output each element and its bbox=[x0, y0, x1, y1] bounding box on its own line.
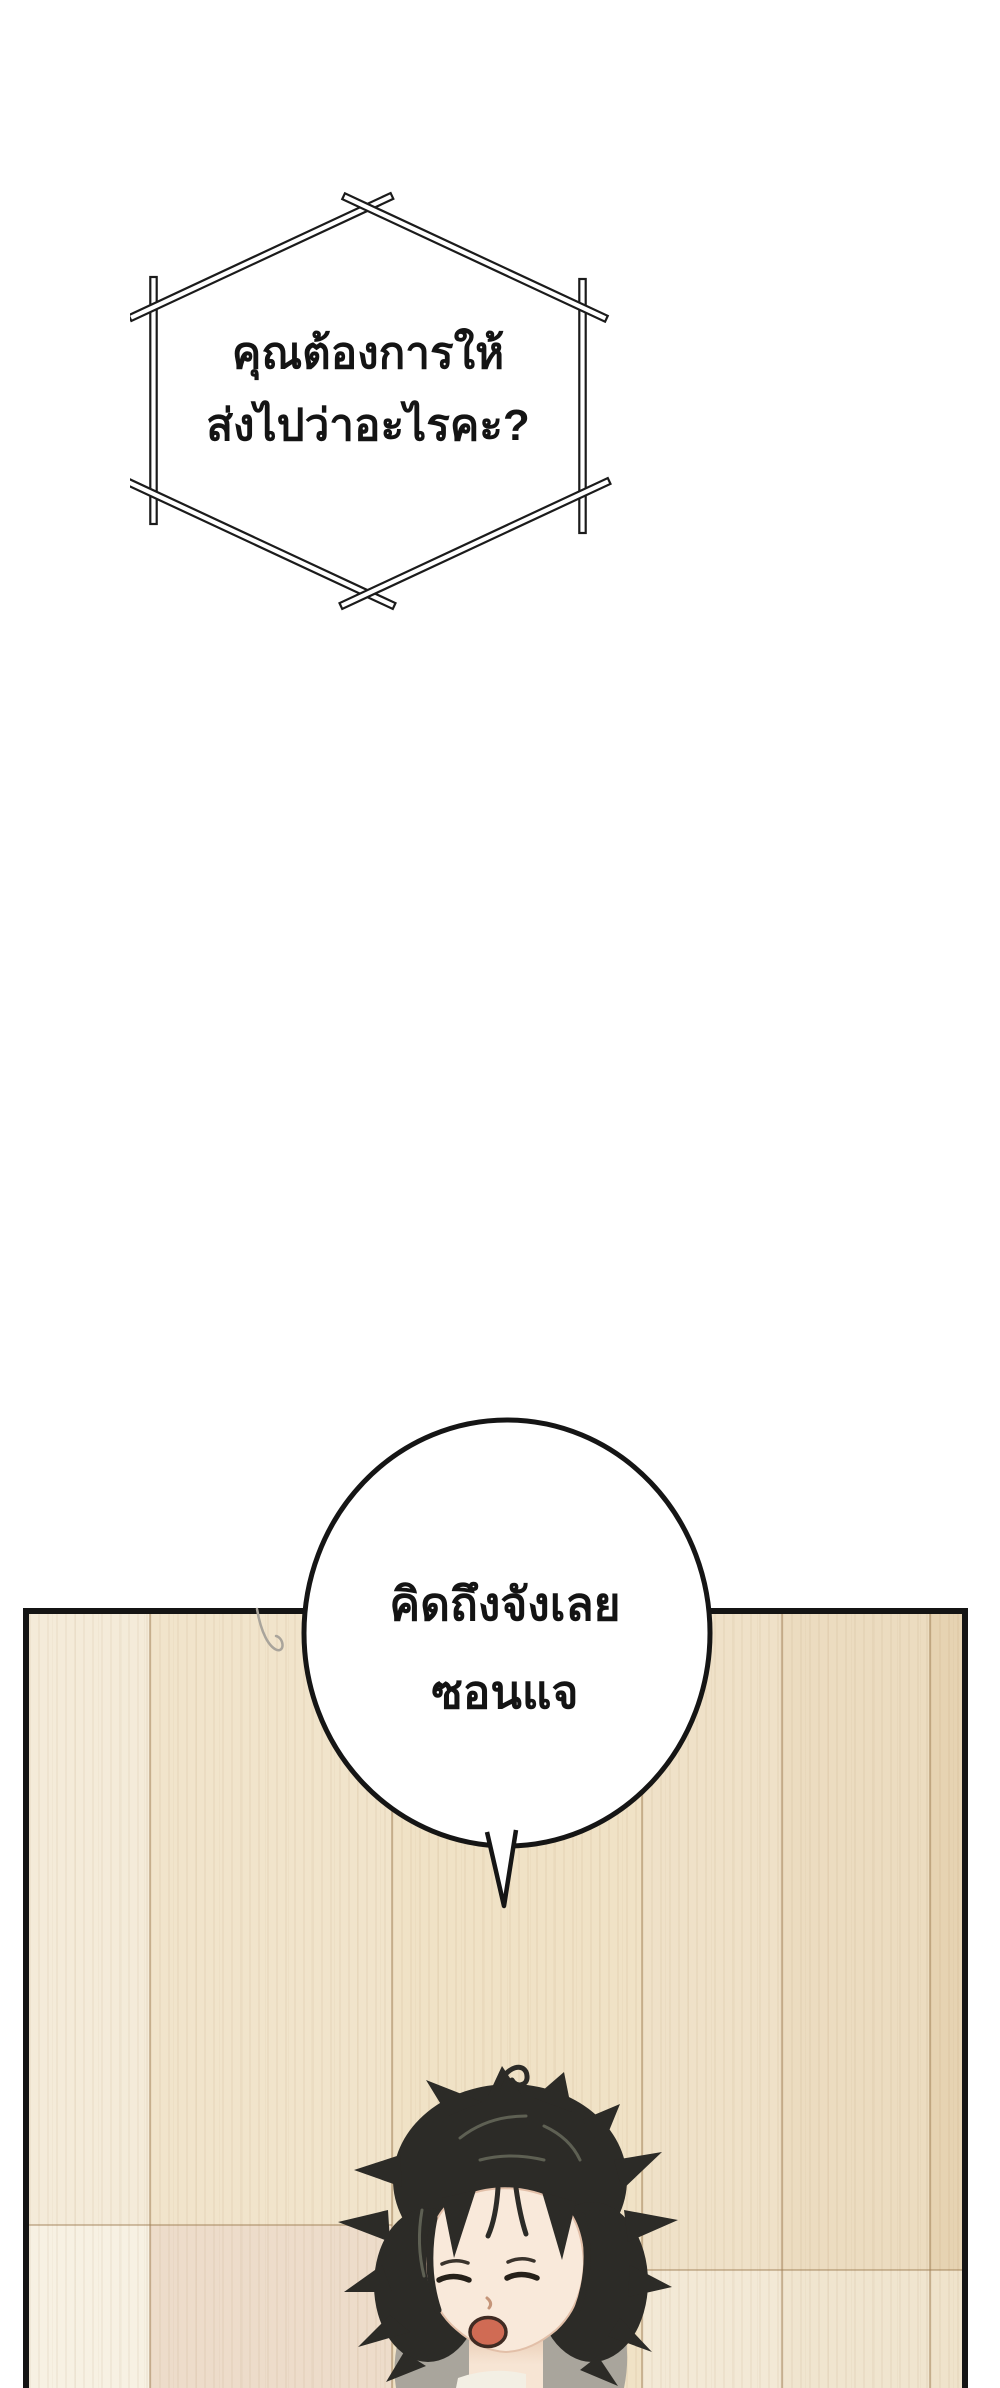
floor-plank bbox=[930, 1614, 962, 2270]
stick-bottom-right bbox=[340, 478, 611, 609]
floor-plank bbox=[29, 1614, 150, 2225]
character-head bbox=[330, 2060, 690, 2388]
floor-plank bbox=[930, 2270, 962, 2388]
comic-page: คุณต้องการให้ ส่งไปว่าอะไรคะ? bbox=[0, 0, 1000, 2388]
mouth-open bbox=[470, 2318, 506, 2347]
speech-line: คิดถึงจังเลย bbox=[305, 1560, 705, 1648]
speech-line: ซอนแจ bbox=[305, 1648, 705, 1736]
floor-plank bbox=[782, 2270, 930, 2388]
speech-line: ส่งไปว่าอะไรคะ? bbox=[133, 390, 603, 462]
floor-plank bbox=[29, 2225, 150, 2388]
plank-seam bbox=[929, 1614, 931, 2388]
plank-seam bbox=[642, 2269, 962, 2271]
wire-curl bbox=[247, 1607, 297, 1667]
speech-line: คุณต้องการให้ bbox=[133, 318, 603, 390]
floor-plank bbox=[782, 1614, 930, 2270]
hexagon-bubble-text: คุณต้องการให้ ส่งไปว่าอะไรคะ? bbox=[133, 318, 603, 462]
stick-bottom-left bbox=[130, 478, 395, 609]
stick-top-left bbox=[130, 193, 393, 321]
round-bubble-text: คิดถึงจังเลย ซอนแจ bbox=[305, 1560, 705, 1736]
plank-seam bbox=[149, 1614, 151, 2388]
stick-top-right bbox=[342, 193, 608, 321]
bubble-tail bbox=[487, 1830, 516, 1906]
plank-seam bbox=[781, 1614, 783, 2388]
